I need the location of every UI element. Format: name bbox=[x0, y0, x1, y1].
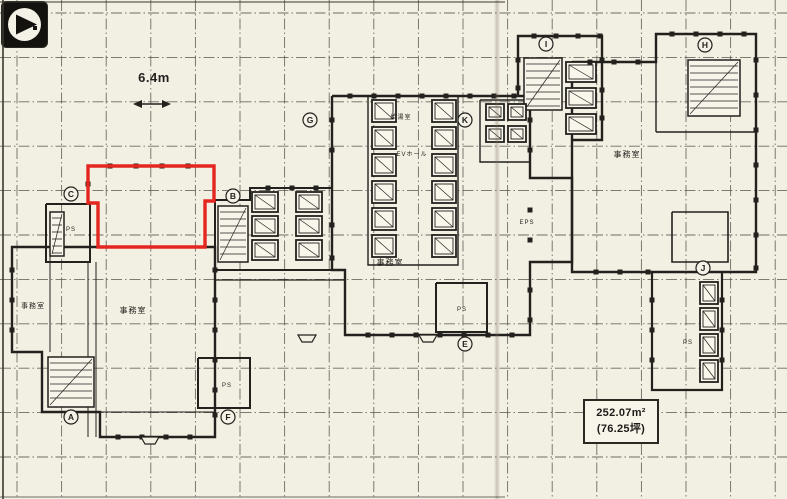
room-label: 事務室 bbox=[377, 257, 404, 267]
room-label: 給湯室 bbox=[390, 113, 411, 121]
column-marker bbox=[164, 435, 169, 440]
column-marker bbox=[754, 58, 759, 63]
column-marker bbox=[213, 358, 218, 363]
column-marker bbox=[754, 93, 759, 98]
wall bbox=[12, 247, 215, 437]
column-marker bbox=[754, 198, 759, 203]
column-marker bbox=[512, 94, 517, 99]
entrance-canopy bbox=[141, 437, 159, 444]
column-marker bbox=[330, 223, 335, 228]
scan-edge-left bbox=[2, 0, 4, 499]
column-marker bbox=[414, 333, 419, 338]
grid-reference-letter: J bbox=[701, 263, 706, 273]
column-marker bbox=[516, 86, 521, 91]
column-marker bbox=[594, 270, 599, 275]
column-marker bbox=[528, 288, 533, 293]
dimension-label: 6.4m bbox=[128, 70, 180, 85]
room-label: PS bbox=[683, 340, 693, 346]
column-marker bbox=[618, 270, 623, 275]
column-marker bbox=[742, 32, 747, 37]
area-annotation: 252.07m² (76.25坪) bbox=[583, 399, 659, 444]
column-marker bbox=[290, 186, 295, 191]
grid-reference-letter: C bbox=[68, 189, 74, 199]
column-marker bbox=[612, 60, 617, 65]
column-marker bbox=[330, 148, 335, 153]
grid-reference-letter: H bbox=[702, 40, 708, 50]
grid-reference-letter: I bbox=[545, 39, 547, 49]
column-marker bbox=[444, 94, 449, 99]
room-label: 事務室 bbox=[614, 149, 641, 159]
column-marker bbox=[554, 34, 559, 39]
column-marker bbox=[718, 32, 723, 37]
column-marker bbox=[646, 270, 651, 275]
entrance-canopy bbox=[298, 335, 316, 342]
column-marker bbox=[528, 208, 533, 213]
column-marker bbox=[396, 94, 401, 99]
column-marker bbox=[720, 328, 725, 333]
column-marker bbox=[528, 318, 533, 323]
column-marker bbox=[650, 298, 655, 303]
compass-logo-icon bbox=[0, 0, 49, 49]
column-marker bbox=[213, 388, 218, 393]
column-marker bbox=[486, 333, 491, 338]
area-sqm: 252.07m² bbox=[596, 406, 646, 422]
column-marker bbox=[116, 435, 121, 440]
room-label: EVホール bbox=[396, 151, 427, 158]
column-marker bbox=[438, 333, 443, 338]
column-marker bbox=[10, 328, 15, 333]
column-marker bbox=[600, 58, 605, 63]
dimension-arrowhead-right bbox=[162, 100, 171, 108]
room-label: PS bbox=[222, 383, 232, 389]
scan-edge-top bbox=[0, 1, 505, 3]
column-marker bbox=[390, 333, 395, 338]
column-marker bbox=[213, 298, 218, 303]
column-marker bbox=[754, 266, 759, 271]
column-marker bbox=[600, 88, 605, 93]
grid-reference-letter: G bbox=[307, 115, 314, 125]
floorplan-canvas: CBGKIHJAFE事務室事務室事務室事務室給湯室EVホールEPSPSPSPSP… bbox=[0, 0, 787, 499]
grid-reference-letter: B bbox=[230, 191, 236, 201]
column-marker bbox=[213, 413, 218, 418]
column-marker bbox=[510, 333, 515, 338]
scan-fold-line bbox=[494, 0, 500, 499]
grid-reference-letter: F bbox=[225, 412, 230, 422]
column-marker bbox=[598, 34, 603, 39]
column-marker bbox=[600, 116, 605, 121]
column-marker bbox=[516, 58, 521, 63]
column-marker bbox=[754, 128, 759, 133]
column-marker bbox=[330, 256, 335, 261]
column-marker bbox=[576, 34, 581, 39]
wall bbox=[672, 212, 728, 262]
column-marker bbox=[266, 186, 271, 191]
column-marker bbox=[670, 32, 675, 37]
column-marker bbox=[188, 435, 193, 440]
scan-edge-bottom bbox=[0, 496, 505, 498]
column-marker bbox=[314, 186, 319, 191]
grid-reference-letter: A bbox=[68, 412, 74, 422]
floorplan-page: CBGKIHJAFE事務室事務室事務室事務室給湯室EVホールEPSPSPSPSP… bbox=[0, 0, 787, 499]
room-label: 事務室 bbox=[21, 301, 45, 310]
dimension-arrowhead-left bbox=[133, 100, 142, 108]
column-marker bbox=[636, 60, 641, 65]
column-marker bbox=[650, 358, 655, 363]
room-label: 事務室 bbox=[120, 305, 147, 315]
entrance-canopy bbox=[419, 335, 437, 342]
column-marker bbox=[468, 94, 473, 99]
column-marker bbox=[372, 94, 377, 99]
column-marker bbox=[213, 328, 218, 333]
column-marker bbox=[650, 328, 655, 333]
room-label: EPS bbox=[519, 220, 534, 226]
column-marker bbox=[720, 298, 725, 303]
column-marker bbox=[532, 34, 537, 39]
column-marker bbox=[10, 268, 15, 273]
column-marker bbox=[528, 118, 533, 123]
room-label: PS bbox=[66, 227, 76, 233]
column-marker bbox=[754, 233, 759, 238]
column-marker bbox=[588, 60, 593, 65]
column-marker bbox=[420, 94, 425, 99]
room-label: PS bbox=[457, 307, 467, 313]
area-tsubo: (76.25坪) bbox=[597, 422, 645, 438]
column-marker bbox=[366, 333, 371, 338]
column-marker bbox=[213, 268, 218, 273]
column-marker bbox=[754, 163, 759, 168]
column-marker bbox=[694, 32, 699, 37]
column-marker bbox=[348, 94, 353, 99]
grid-reference-letter: E bbox=[462, 339, 468, 349]
column-marker bbox=[10, 298, 15, 303]
grid-reference-letter: K bbox=[462, 115, 469, 125]
column-marker bbox=[528, 238, 533, 243]
column-marker bbox=[528, 148, 533, 153]
column-marker bbox=[720, 358, 725, 363]
column-marker bbox=[330, 118, 335, 123]
